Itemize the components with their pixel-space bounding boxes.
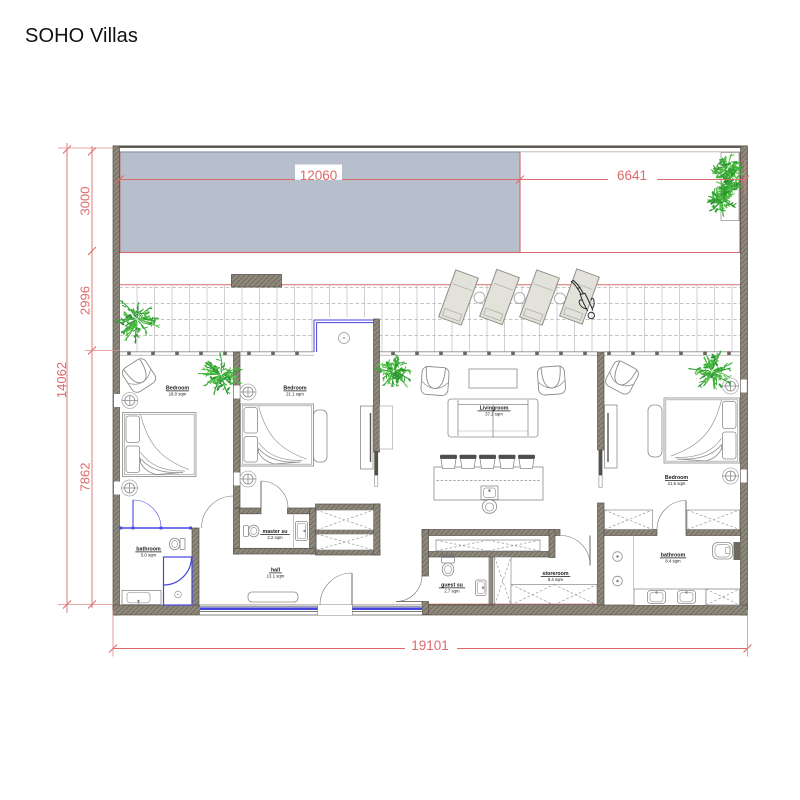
svg-text:21.1 sqm: 21.1 sqm: [286, 392, 304, 397]
svg-text:13.1 sqm: 13.1 sqm: [267, 574, 285, 579]
svg-text:5.0 sqm: 5.0 sqm: [141, 553, 157, 558]
svg-text:19101: 19101: [411, 638, 449, 653]
svg-text:3000: 3000: [78, 187, 93, 216]
svg-text:8.4 sqm: 8.4 sqm: [548, 577, 564, 582]
svg-text:21.5 sqm: 21.5 sqm: [668, 481, 686, 486]
svg-text:6641: 6641: [617, 168, 647, 183]
svg-text:37.2 sqm: 37.2 sqm: [485, 412, 503, 417]
svg-text:8.4 sqm: 8.4 sqm: [665, 559, 681, 564]
svg-text:2996: 2996: [78, 286, 93, 315]
svg-text:7862: 7862: [78, 463, 93, 492]
svg-text:18.0 sqm: 18.0 sqm: [169, 392, 187, 397]
svg-text:2.7 sqm: 2.7 sqm: [444, 589, 460, 594]
svg-text:2.2 sqm: 2.2 sqm: [267, 535, 283, 540]
svg-text:14062: 14062: [54, 362, 69, 398]
svg-text:12060: 12060: [300, 168, 338, 183]
